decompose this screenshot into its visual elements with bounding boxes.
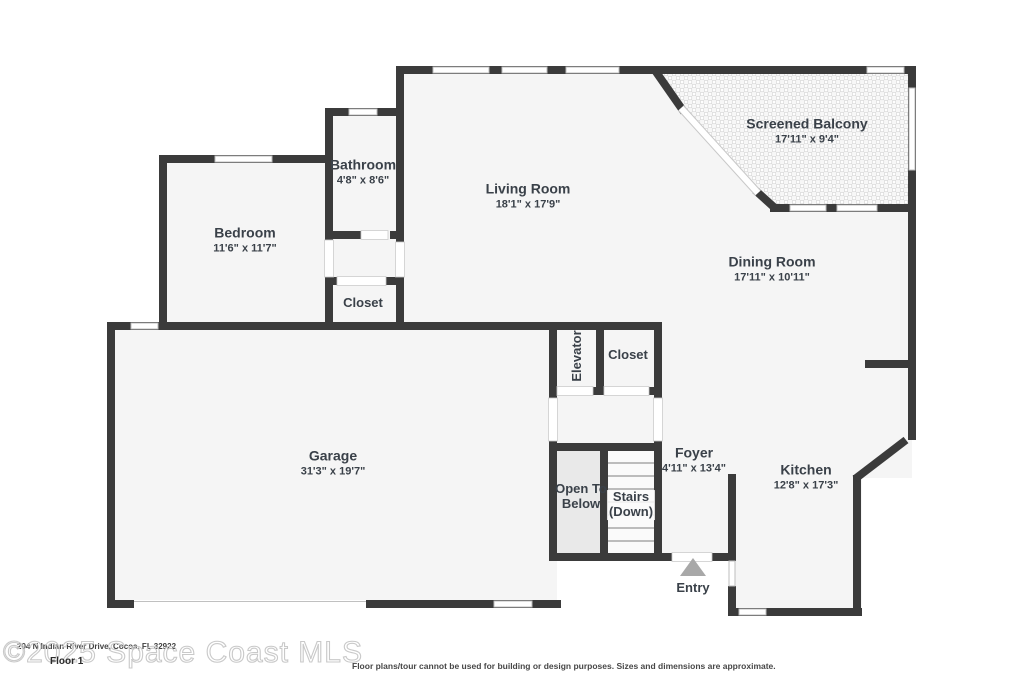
floor-number-label: Floor 1 [50, 656, 83, 667]
open-to-below-area [557, 451, 600, 553]
floor-plan-drawing [0, 0, 1024, 683]
address-text: 204 N Indian River Drive, Cocoa, FL 3292… [17, 642, 176, 651]
floor-plan-page: Screened Balcony 17'11" x 9'4" Living Ro… [0, 0, 1024, 683]
disclaimer-text: Floor plans/tour cannot be used for buil… [352, 661, 776, 671]
